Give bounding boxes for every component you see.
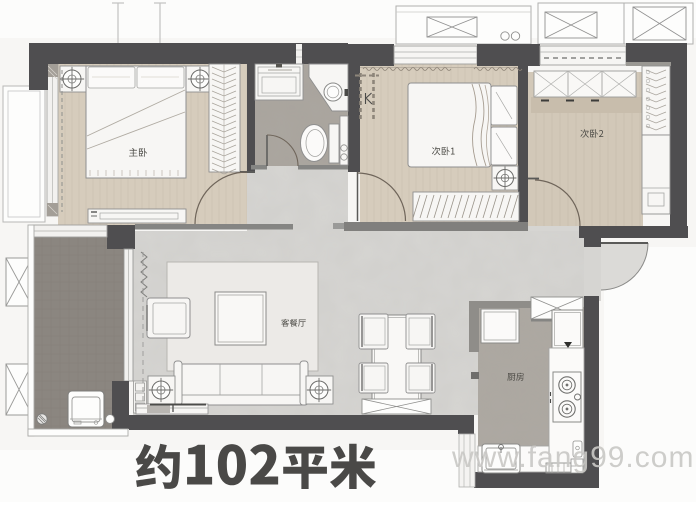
svg-text:www.fang99.com: www.fang99.com xyxy=(451,441,694,474)
